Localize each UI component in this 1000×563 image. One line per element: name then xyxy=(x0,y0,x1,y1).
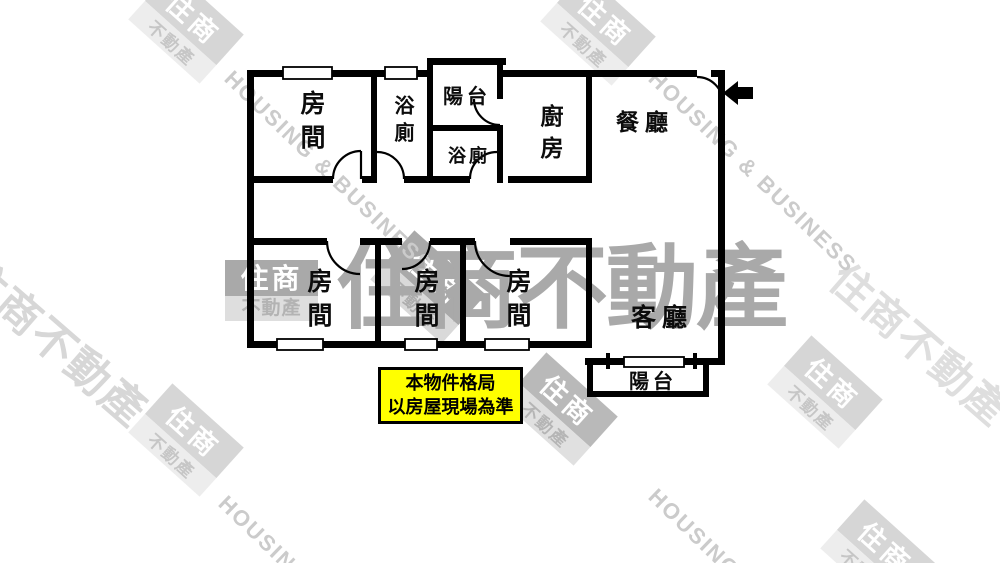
disclaimer-line1: 本物件格局 xyxy=(406,372,496,395)
label-bedroom1: 房間 xyxy=(293,90,329,158)
label-bath1: 浴廁 xyxy=(388,95,417,149)
entry-arrow-icon xyxy=(723,81,753,105)
label-bath2: 浴廁 xyxy=(448,142,490,168)
label-bedroom4: 房間 xyxy=(499,268,535,336)
label-living: 客廳 xyxy=(631,298,693,334)
label-kitchen: 廚房 xyxy=(533,104,567,168)
floor-plan-image: 住商 不動產 住商 不動產 住商 不動產 住商 不動產 住商 不動產 住商 不動… xyxy=(0,0,1000,563)
disclaimer-line2: 以房屋現場為準 xyxy=(388,396,514,419)
label-dining: 餐廳 xyxy=(616,103,674,137)
label-bedroom3: 房間 xyxy=(407,268,443,336)
label-bedroom2: 房間 xyxy=(300,268,336,336)
label-balcony-bottom: 陽台 xyxy=(629,365,677,394)
disclaimer-note-box: 本物件格局 以房屋現場為準 xyxy=(378,367,523,424)
label-balcony-top: 陽台 xyxy=(443,80,491,109)
